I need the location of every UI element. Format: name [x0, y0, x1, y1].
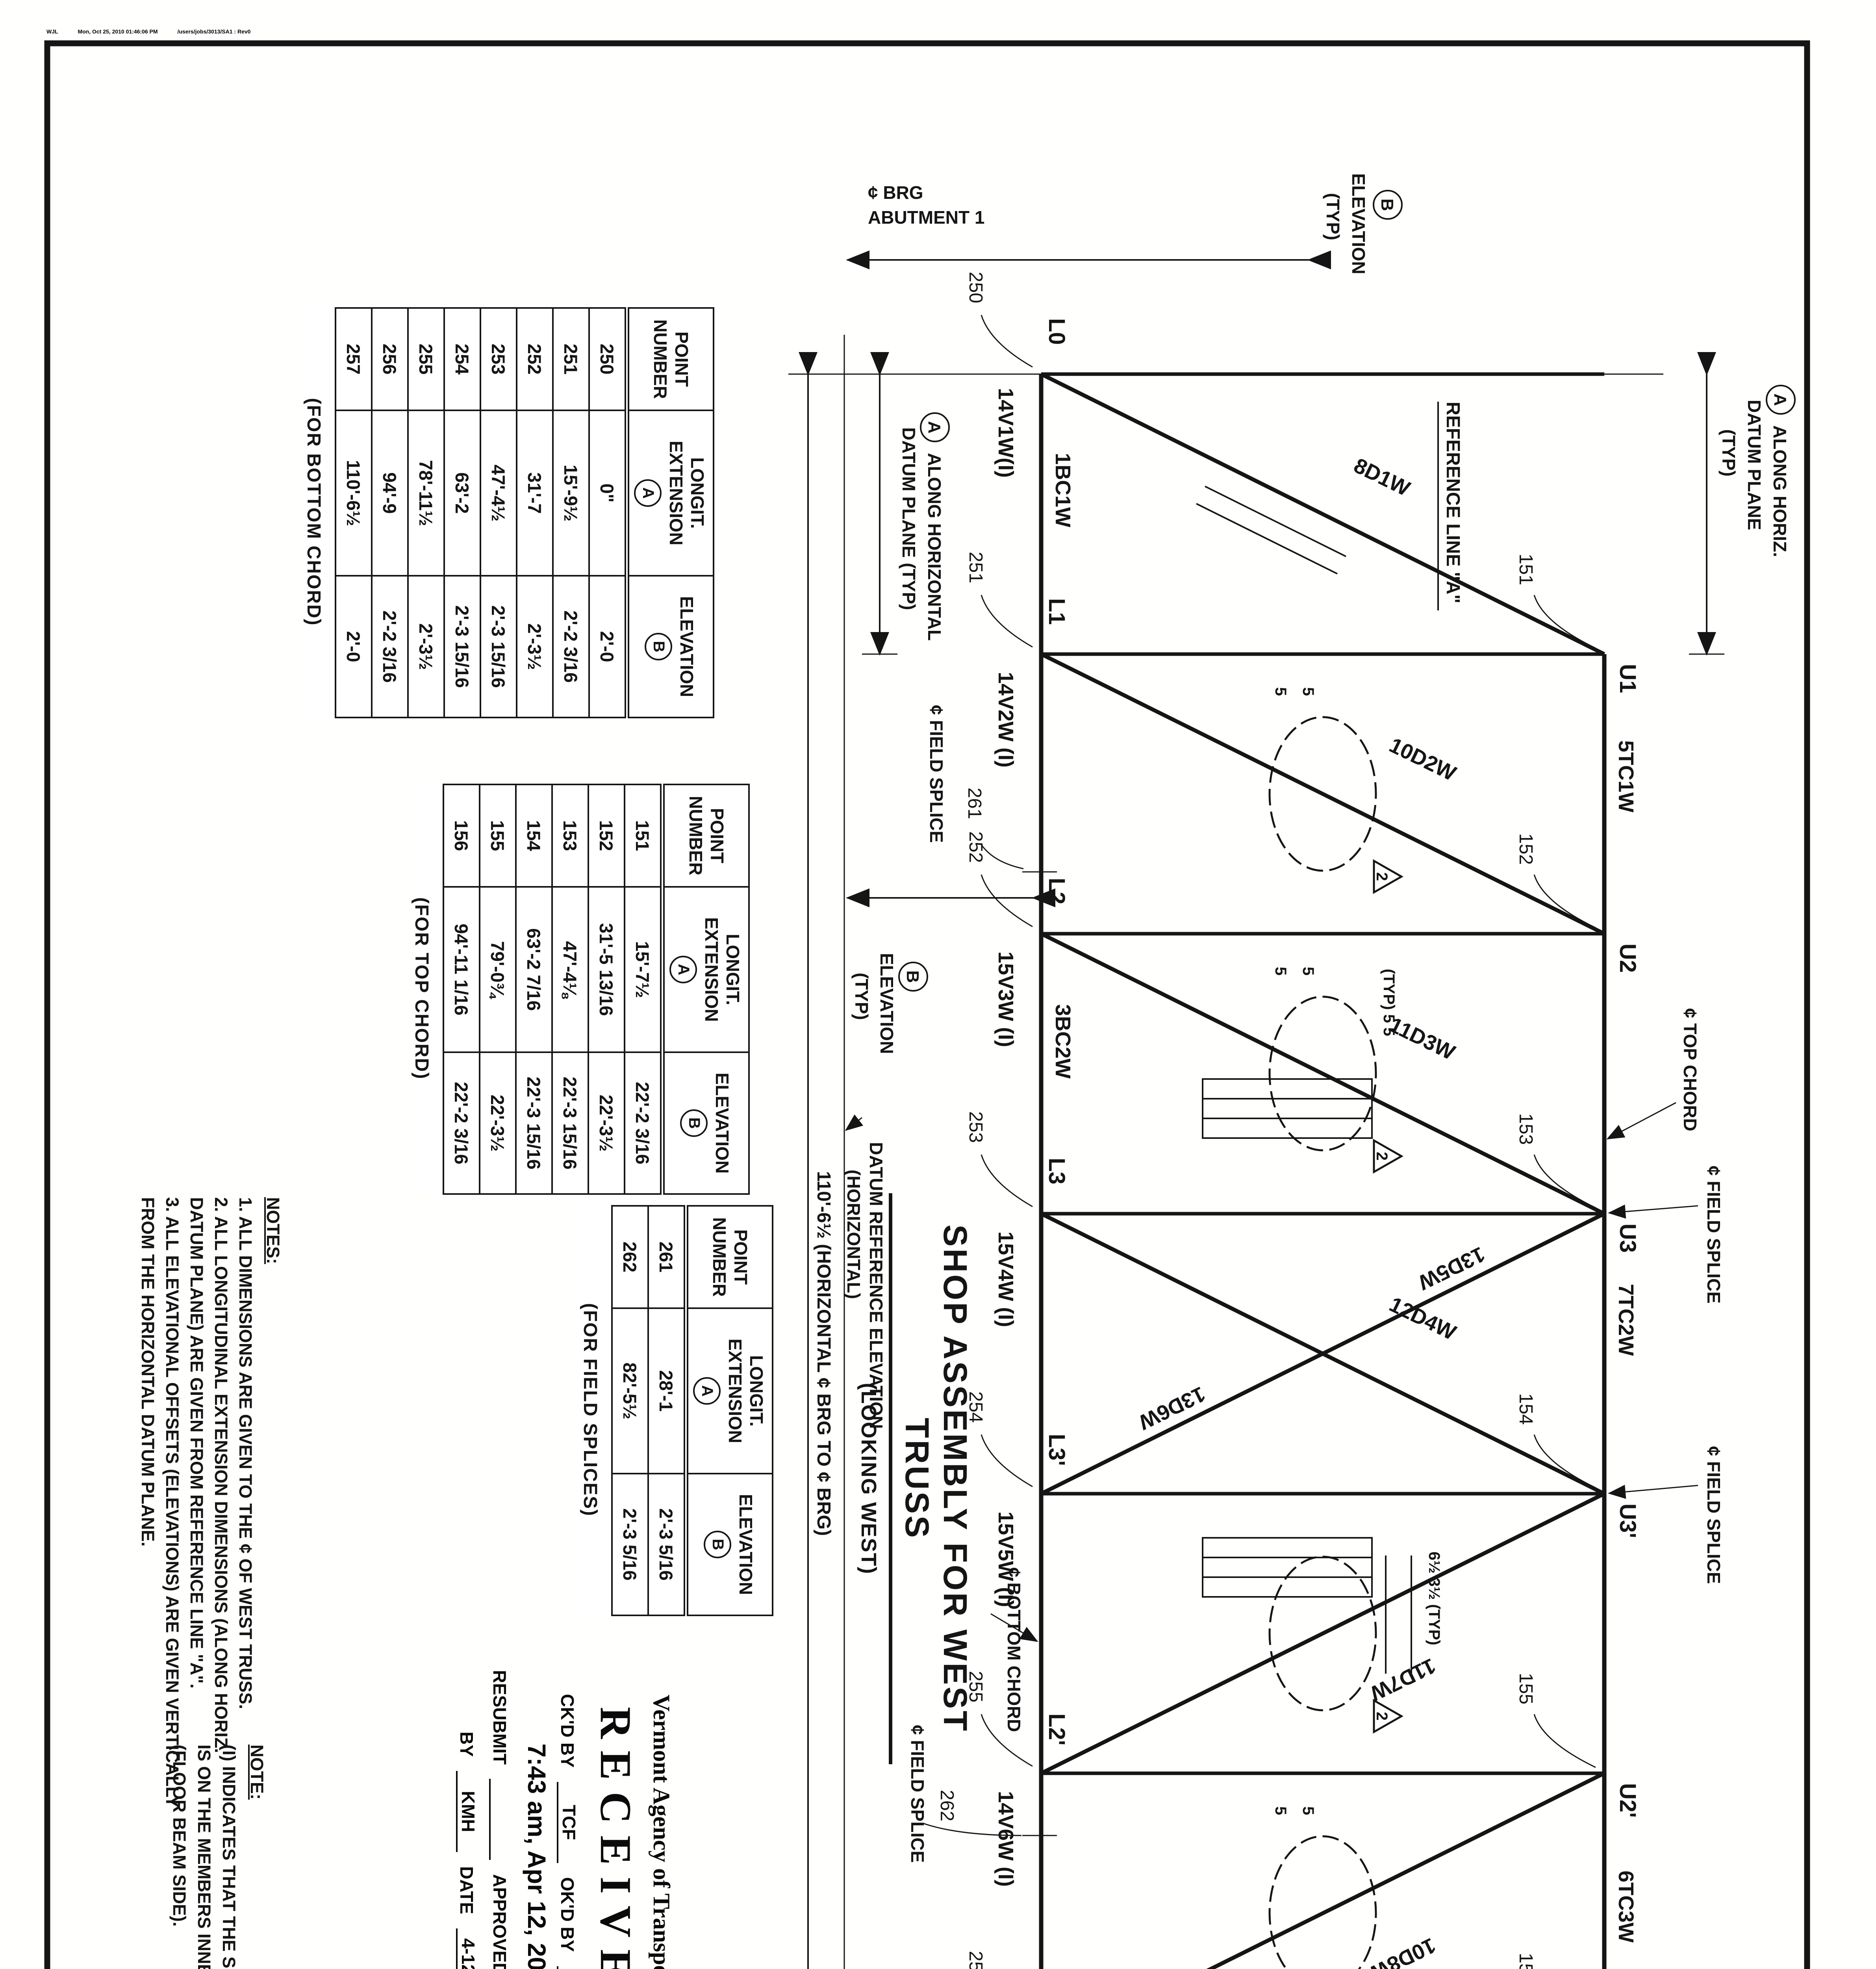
stamp-date: 4-12-11 — [456, 1928, 479, 1969]
mark-15v4w: 15V4W (I) — [994, 1231, 1018, 1327]
svg-text:(TYP): (TYP) — [1718, 429, 1739, 476]
node-l1: L1 — [1044, 598, 1070, 625]
svg-text:2: 2 — [1373, 1152, 1390, 1161]
mark-13d5w: 13D5W — [1414, 1242, 1489, 1294]
mark-10d8w: 10D8W — [1365, 1933, 1439, 1969]
svg-text:261: 261 — [964, 788, 985, 819]
table-row: 15115'-7½22'-2 3/16 — [625, 784, 662, 1194]
svg-text:262: 262 — [936, 1790, 957, 1821]
table-caption: (FOR BOTTOM CHORD) — [303, 307, 324, 717]
svg-text:154: 154 — [1515, 1393, 1536, 1425]
mark-10d2w: 10D2W — [1386, 733, 1460, 786]
mark-13d6w: 13D6W — [1135, 1382, 1209, 1434]
node-u3: U3 — [1615, 1224, 1641, 1253]
table-row: 25694'-92'-2 3/16 — [372, 308, 408, 718]
table-caption: (FOR TOP CHORD) — [411, 784, 432, 1193]
svg-text:5: 5 — [1299, 687, 1317, 696]
svg-text:A: A — [925, 421, 944, 434]
table-row: 25463'-22'-3 15/16 — [444, 308, 480, 718]
reference-line-a-label: REFERENCE LINE "A" — [1442, 402, 1463, 603]
shipping-mark-note: NOTE: (I) INDICATES THAT THE SHIPPING MA… — [167, 1745, 269, 1969]
member-marks: 14V1W(I) 14V2W (I) 15V3W (I) 15V4W (I) 1… — [994, 388, 1638, 1969]
svg-text:5: 5 — [1299, 1806, 1317, 1815]
table-row: 25231'-72'-3½ — [517, 308, 553, 718]
svg-text:256: 256 — [965, 1951, 986, 1969]
stamp-ckd-by: TCF — [557, 1782, 580, 1863]
stamp-received: RECEIVED — [590, 1615, 641, 1969]
field-splice-u3: ¢ FIELD SPLICE — [1704, 1166, 1724, 1303]
mark-5tc1w: 5TC1W — [1614, 740, 1638, 812]
node-u2: U2 — [1615, 944, 1641, 973]
svg-text:5: 5 — [1272, 1806, 1289, 1815]
svg-text:153: 153 — [1515, 1113, 1536, 1145]
svg-text:156: 156 — [1515, 1953, 1536, 1969]
svg-text:(TYP): (TYP) — [851, 973, 872, 1020]
mark-14v1w: 14V1W(I) — [994, 388, 1018, 478]
table-row: 15347'-4⅛22'-3 15/16 — [552, 784, 588, 1194]
top-chord-cl: ¢ TOP CHORD — [1680, 1008, 1700, 1131]
general-notes: NOTES: 1. ALL DIMENSIONS ARE GIVEN TO TH… — [135, 1197, 285, 1808]
svg-text:ELEVATION: ELEVATION — [877, 953, 897, 1054]
svg-text:5: 5 — [1299, 967, 1317, 975]
mark-14v2w: 14V2W (I) — [994, 672, 1018, 768]
svg-text:ELEVATION: ELEVATION — [1348, 173, 1369, 274]
table-row: 15231'-5 13/1622'-3½ — [588, 784, 625, 1194]
mark-12d4w: 12D4W — [1386, 1292, 1460, 1345]
field-splice-261: ¢ FIELD SPLICE — [926, 705, 947, 843]
stamp-by: KMH — [456, 1771, 479, 1852]
node-l3: L3 — [1044, 1158, 1070, 1185]
table-row: 15463'-2 7/1622'-3 15/16 — [516, 784, 552, 1194]
svg-text:251: 251 — [965, 552, 986, 583]
svg-text:252: 252 — [965, 831, 986, 863]
stamp-resubmit-value — [489, 1779, 491, 1860]
stamp-agency: Vermont Agency of Transportation — [648, 1615, 675, 1969]
node-l2p: L2' — [1044, 1713, 1070, 1745]
mark-7tc2w: 7TC2W — [1614, 1284, 1638, 1356]
stamp-okd-by: SSS — [557, 1966, 580, 1969]
overall-dimension: 110'-6½ (HORIZONTAL ¢ BRG TO ¢ BRG) — [813, 1171, 834, 1536]
svg-text:DATUM PLANE: DATUM PLANE — [1744, 400, 1765, 530]
mark-1bc1w: 1BC1W — [1051, 453, 1075, 527]
svg-text:A: A — [1770, 393, 1790, 406]
mark-11d7w: 11D7W — [1366, 1654, 1439, 1706]
node-l0: L0 — [1044, 318, 1070, 345]
dim-tc: 6½ 3½ (TYP) — [1426, 1552, 1443, 1645]
svg-text:DATUM PLANE (TYP): DATUM PLANE (TYP) — [899, 427, 919, 610]
table-row: 2500"2'-0 — [589, 308, 627, 718]
member-callout-sketches — [1196, 486, 1416, 1969]
node-u1: U1 — [1615, 664, 1641, 693]
table-caption: (FOR FIELD SPLICES) — [579, 1205, 601, 1615]
mark-15v3w: 15V3W (I) — [994, 951, 1018, 1047]
svg-text:5: 5 — [1272, 967, 1289, 975]
table-row: 257110'-6½2'-0 — [336, 308, 372, 718]
table-row: 25578'-11½2'-3½ — [408, 308, 444, 718]
svg-text:(TYP): (TYP) — [1323, 193, 1343, 240]
table-row: 25115'-9½2'-2 3/16 — [553, 308, 589, 718]
svg-text:B: B — [903, 970, 922, 983]
drawing-title-sub: (LOOKING WEST) — [856, 1193, 881, 1764]
drawing-title: SHOP ASSEMBLY FOR WEST TRUSS (LOOKING WE… — [856, 1193, 974, 1764]
svg-text:250: 250 — [965, 272, 986, 303]
drawing-title-main: SHOP ASSEMBLY FOR WEST TRUSS — [889, 1193, 974, 1764]
svg-text:2: 2 — [1373, 872, 1390, 881]
table-row: 26282'-5½2'-3 5/16 — [612, 1206, 648, 1615]
mark-3bc2w: 3BC2W — [1051, 1004, 1075, 1079]
received-stamp: Vermont Agency of Transportation RECEIVE… — [456, 1615, 675, 1969]
svg-text:ALONG HORIZONTAL: ALONG HORIZONTAL — [924, 453, 945, 641]
node-l2: L2 — [1044, 878, 1070, 905]
mark-8d1w: 8D1W — [1350, 454, 1414, 501]
table-row: 25347'-4½2'-3 15/16 — [480, 308, 517, 718]
svg-text:253: 253 — [965, 1111, 986, 1143]
svg-text:151: 151 — [1515, 554, 1536, 585]
svg-text:ALONG HORIZ.: ALONG HORIZ. — [1770, 425, 1790, 557]
node-u2p: U2' — [1615, 1783, 1641, 1818]
svg-text:B: B — [1377, 198, 1397, 211]
svg-text:ABUTMENT 1: ABUTMENT 1 — [868, 207, 984, 228]
bottom-chord-table: POINTNUMBER LONGIT. EXTENSIONA ELEVATION… — [303, 307, 714, 717]
table-row: 15694'-11 1/1622'-2 3/16 — [443, 784, 480, 1194]
node-l3p: L3' — [1044, 1434, 1070, 1466]
mark-14v6w: 14V6W (I) — [994, 1791, 1018, 1887]
drawing-sheet: 2 2 2 2 L0 L1 L2 L3 L3' L2' L1' L0' U1 U… — [0, 0, 1876, 1969]
svg-text:155: 155 — [1515, 1673, 1536, 1704]
revision-clouds — [1270, 717, 1401, 1969]
scanned-drawing-page: WJL Mon, Oct 25, 2010 01:46:06 PM /users… — [0, 0, 1876, 1969]
svg-text:152: 152 — [1515, 833, 1536, 865]
dim-typ-5-5: (TYP) 5 5 — [1380, 969, 1398, 1036]
node-u3p: U3' — [1615, 1504, 1641, 1538]
table-row: 26128'-12'-3 5/16 — [648, 1206, 686, 1615]
field-splice-u3p: ¢ FIELD SPLICE — [1704, 1446, 1724, 1584]
svg-text:5: 5 — [1272, 687, 1289, 696]
field-splice-table: POINTNUMBER LONGIT. EXTENSIONA ELEVATION… — [579, 1205, 773, 1615]
svg-text:2: 2 — [1373, 1712, 1390, 1721]
svg-text:¢ BRG: ¢ BRG — [868, 182, 923, 203]
truss-members — [1041, 374, 1604, 1969]
stamp-datetime: 7:43 am, Apr 12, 2011 — [522, 1615, 551, 1969]
bottom-chord-cl: ¢ BOTTOM CHORD — [1004, 1567, 1024, 1732]
table-row: 15579'-0¾22'-3½ — [480, 784, 516, 1194]
revision-flag-numbers: 2 2 2 2 — [1373, 872, 1390, 1969]
top-chord-table: POINTNUMBER LONGIT. EXTENSIONA ELEVATION… — [411, 784, 750, 1193]
mark-6tc3w: 6TC3W — [1614, 1871, 1638, 1943]
node-labels: L0 L1 L2 L3 L3' L2' L1' L0' U1 U2 U3 U3'… — [1044, 318, 1641, 1969]
